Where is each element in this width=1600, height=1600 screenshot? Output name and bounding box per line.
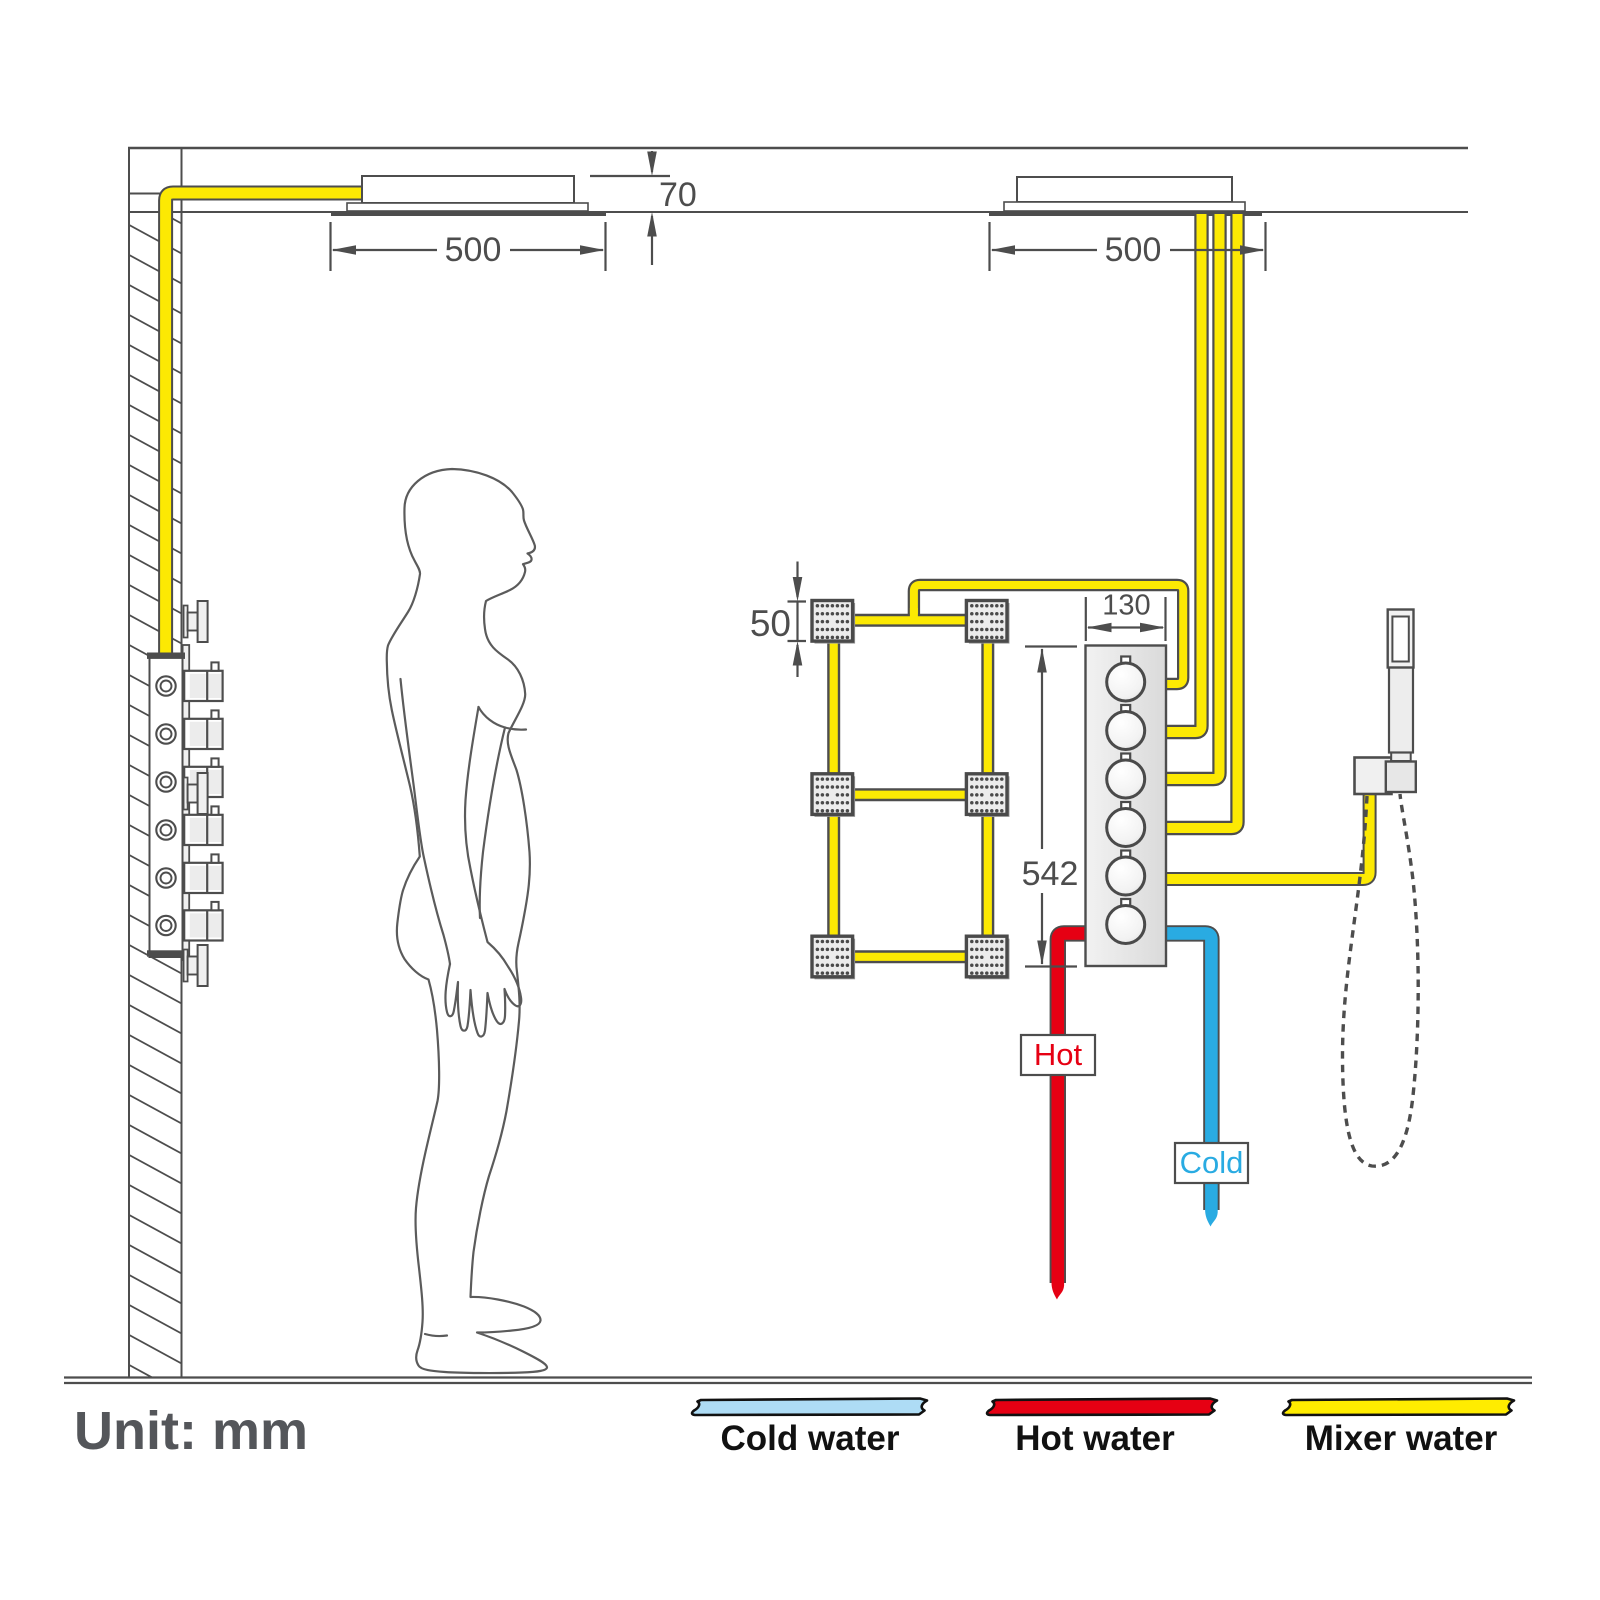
svg-text:Cold: Cold [1180,1145,1244,1180]
svg-text:50: 50 [750,603,791,644]
svg-text:500: 500 [445,231,502,269]
svg-text:Hot water: Hot water [1015,1419,1175,1458]
svg-text:542: 542 [1022,855,1079,893]
svg-text:Hot: Hot [1034,1037,1083,1072]
svg-text:Mixer water: Mixer water [1305,1419,1498,1458]
svg-text:Cold water: Cold water [721,1419,900,1458]
svg-text:70: 70 [659,176,697,214]
svg-text:130: 130 [1102,590,1150,622]
svg-text:500: 500 [1105,231,1162,269]
svg-text:Unit: mm: Unit: mm [74,1401,308,1461]
